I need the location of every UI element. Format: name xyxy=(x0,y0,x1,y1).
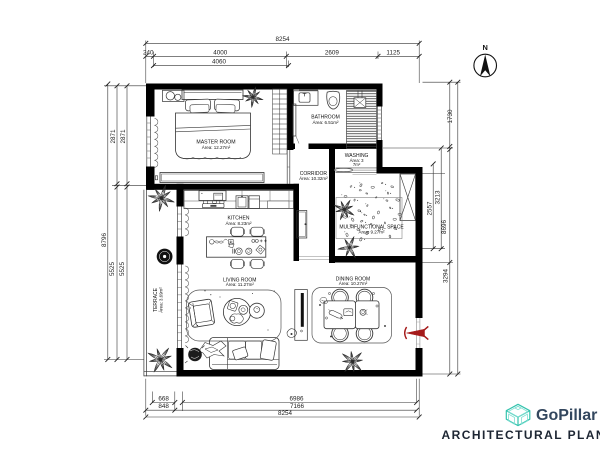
svg-text:3294: 3294 xyxy=(443,269,450,284)
svg-text:Área: 10.32m²: Área: 10.32m² xyxy=(299,175,328,181)
svg-text:3213: 3213 xyxy=(435,190,442,205)
svg-text:240: 240 xyxy=(143,49,154,56)
svg-text:2609: 2609 xyxy=(325,49,340,56)
svg-text:Área: 6.51m²: Área: 6.51m² xyxy=(312,119,339,125)
svg-text:Área: 8.23m²: Área: 8.23m² xyxy=(225,220,252,226)
svg-text:8254: 8254 xyxy=(278,410,293,417)
svg-text:2871: 2871 xyxy=(120,129,127,144)
svg-text:6986: 6986 xyxy=(289,395,304,402)
svg-text:8796: 8796 xyxy=(101,233,108,248)
svg-text:Área: 3.69m²: Área: 3.69m² xyxy=(159,287,164,313)
svg-text:848: 848 xyxy=(158,403,169,410)
svg-text:Área: 9.27m²: Área: 9.27m² xyxy=(358,228,385,234)
svg-text:1730: 1730 xyxy=(447,109,454,124)
svg-text:ARCHITECTURAL PLAN: ARCHITECTURAL PLAN xyxy=(442,428,600,442)
svg-text:5525: 5525 xyxy=(119,262,126,277)
svg-text:Área: 11.27m²: Área: 11.27m² xyxy=(226,281,255,287)
svg-text:8254: 8254 xyxy=(275,36,290,43)
svg-text:N: N xyxy=(483,43,488,52)
svg-text:7166: 7166 xyxy=(290,403,305,410)
svg-text:668: 668 xyxy=(158,395,169,402)
svg-text:GoPillar: GoPillar xyxy=(536,407,597,424)
svg-text:Área: 12.27m²: Área: 12.27m² xyxy=(202,144,231,150)
svg-text:1125: 1125 xyxy=(386,49,400,56)
svg-text:2871: 2871 xyxy=(110,129,117,144)
svg-text:Área: 10.27m²: Área: 10.27m² xyxy=(339,280,368,286)
svg-text:7m²: 7m² xyxy=(353,162,361,167)
svg-text:8696: 8696 xyxy=(441,220,448,235)
svg-text:4000: 4000 xyxy=(213,49,228,56)
svg-text:5525: 5525 xyxy=(109,262,116,277)
svg-text:4060: 4060 xyxy=(212,59,227,66)
svg-text:2557: 2557 xyxy=(427,201,434,216)
